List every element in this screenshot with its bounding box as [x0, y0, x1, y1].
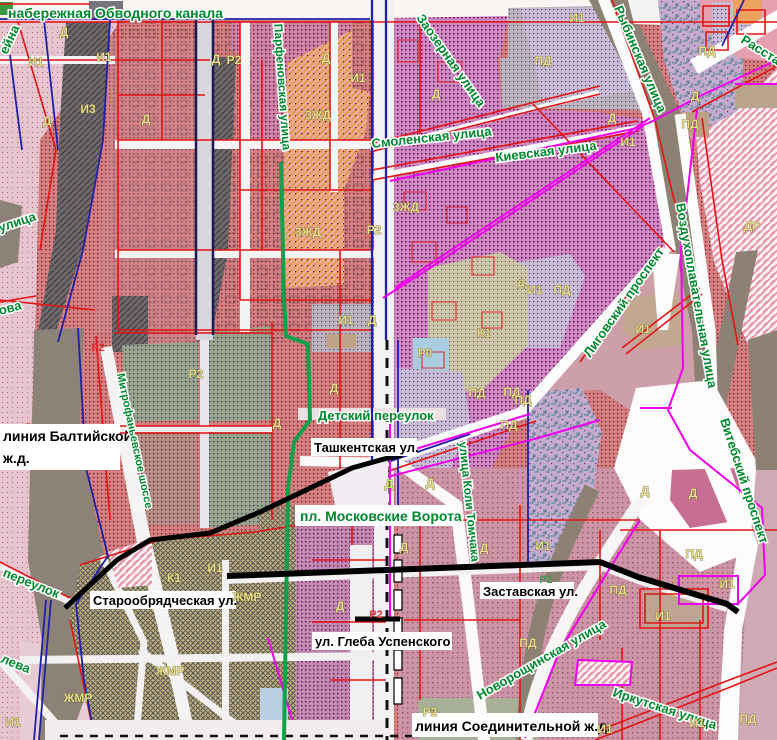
svg-text:ул. Глеба Успенского: ул. Глеба Успенского [315, 634, 450, 649]
svg-text:3ЖД: 3ЖД [295, 225, 322, 239]
svg-text:Р2: Р2 [91, 342, 104, 354]
svg-text:Д: Д [480, 541, 489, 555]
svg-text:Р2: Р2 [423, 705, 438, 719]
svg-text:Д: Д [368, 313, 377, 327]
svg-text:линия Соединительной ж.д.: линия Соединительной ж.д. [415, 718, 611, 734]
svg-text:ЖМР: ЖМР [232, 590, 262, 604]
svg-text:К1: К1 [477, 326, 491, 340]
svg-text:Старообрядческая ул.: Старообрядческая ул. [93, 593, 237, 608]
svg-text:И1: И1 [5, 715, 21, 729]
svg-text:Д: Д [400, 540, 409, 554]
svg-text:Д: Д [336, 599, 345, 613]
svg-text:И1: И1 [569, 11, 585, 25]
svg-text:ЖМР: ЖМР [63, 691, 93, 705]
svg-text:Д: Д [426, 476, 435, 490]
svg-text:И1: И1 [207, 561, 223, 575]
svg-text:пл. Московские Ворота: пл. Московские Ворота [300, 508, 462, 524]
svg-text:ДР: ДР [744, 219, 761, 233]
svg-text:Д: Д [385, 477, 394, 491]
svg-text:Д: Д [60, 25, 69, 39]
svg-text:Д: Д [608, 111, 617, 125]
svg-text:ПД: ПД [534, 54, 552, 68]
svg-text:ПД: ПД [681, 117, 699, 131]
svg-text:Д: Д [691, 89, 700, 103]
svg-text:И1: И1 [620, 135, 636, 149]
svg-text:И3: И3 [80, 102, 96, 116]
svg-text:ПД: ПД [685, 547, 703, 561]
svg-text:Д: Д [432, 87, 441, 101]
svg-text:ПД: ПД [609, 583, 627, 597]
svg-text:3ЖД: 3ЖД [305, 108, 332, 122]
svg-text:И1: И1 [535, 539, 551, 553]
svg-text:ЖМР: ЖМР [155, 664, 185, 678]
svg-text:набережная Обводного канала: набережная Обводного канала [8, 5, 223, 21]
svg-text:Д: Д [322, 51, 331, 65]
svg-text:Р0: Р0 [418, 346, 433, 360]
svg-text:ПД: ПД [500, 418, 518, 432]
svg-text:ПД: ПД [553, 283, 571, 297]
svg-text:Заставская ул.: Заставская ул. [483, 584, 578, 599]
svg-text:К1: К1 [167, 571, 181, 585]
svg-text:И1: И1 [527, 283, 543, 297]
svg-text:Р2: Р2 [227, 53, 242, 67]
svg-text:И1: И1 [719, 577, 735, 591]
svg-text:Д: Д [212, 52, 221, 66]
svg-text:Ташкентская ул.: Ташкентская ул. [314, 440, 419, 455]
svg-text:И1: И1 [655, 609, 671, 623]
svg-text:И1: И1 [597, 722, 613, 736]
svg-text:Д: Д [43, 114, 52, 128]
svg-text:И1: И1 [689, 716, 705, 730]
svg-text:Д: Д [641, 484, 650, 498]
svg-text:И1: И1 [350, 71, 366, 85]
svg-text:И1: И1 [635, 322, 651, 336]
svg-text:ПД: ПД [698, 44, 716, 58]
svg-text:ж.д.: ж.д. [2, 450, 30, 466]
svg-text:Д: Д [142, 112, 151, 126]
svg-text:Р2: Р2 [189, 367, 204, 381]
svg-text:ПД: ПД [519, 636, 537, 650]
svg-text:Р2: Р2 [369, 609, 382, 621]
svg-text:ПД: ПД [514, 393, 532, 407]
svg-text:ПД: ПД [468, 386, 486, 400]
svg-text:Р2: Р2 [539, 574, 552, 586]
svg-text:линия Балтийской: линия Балтийской [3, 428, 132, 444]
svg-text:д: д [517, 275, 525, 289]
svg-text:Д: Д [689, 486, 698, 500]
svg-text:Д: Д [273, 416, 282, 430]
svg-text:Р2: Р2 [367, 223, 382, 237]
svg-text:Детский переулок: Детский переулок [318, 408, 434, 423]
svg-text:И1: И1 [96, 50, 112, 64]
svg-text:И1: И1 [28, 55, 44, 69]
svg-text:И1: И1 [338, 313, 354, 327]
svg-text:3ЖД: 3ЖД [393, 200, 420, 214]
svg-text:Д: Д [330, 381, 339, 395]
svg-text:ПД: ПД [739, 712, 757, 726]
